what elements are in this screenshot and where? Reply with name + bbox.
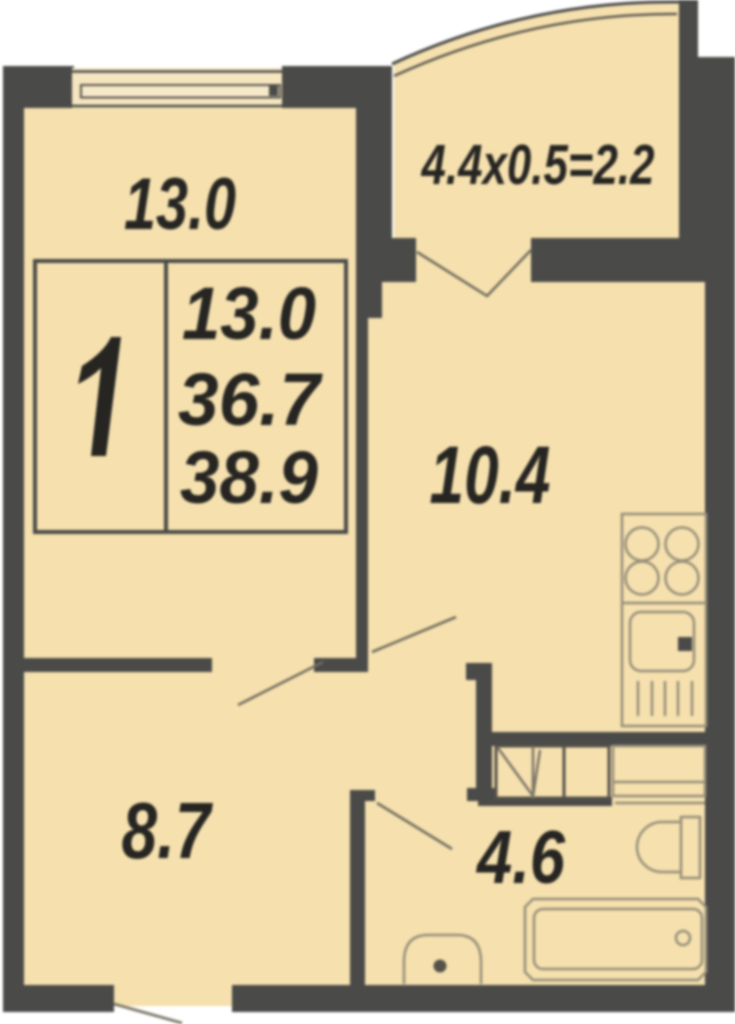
svg-text:4.4x0.5=2.2: 4.4x0.5=2.2 <box>421 133 655 197</box>
svg-text:10.4: 10.4 <box>430 430 551 521</box>
svg-text:38.9: 38.9 <box>180 436 318 519</box>
svg-text:13.0: 13.0 <box>182 272 316 355</box>
svg-text:4.6: 4.6 <box>475 815 566 899</box>
svg-text:13.0: 13.0 <box>124 164 236 245</box>
svg-text:8.7: 8.7 <box>122 786 214 875</box>
svg-text:36.7: 36.7 <box>178 358 324 441</box>
